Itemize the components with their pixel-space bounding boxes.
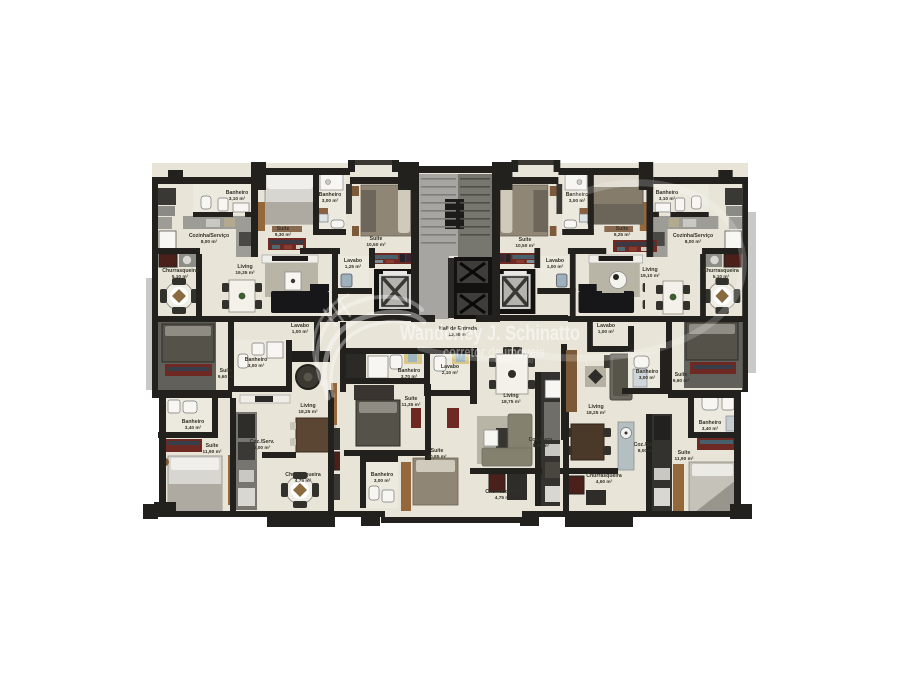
svg-text:Living: Living bbox=[642, 267, 657, 273]
svg-text:1,00 m²: 1,00 m² bbox=[598, 329, 615, 335]
svg-text:9,30 m²: 9,30 m² bbox=[275, 232, 292, 238]
svg-text:18,25 m²: 18,25 m² bbox=[586, 410, 606, 416]
svg-text:3,00 m²: 3,00 m² bbox=[374, 478, 391, 484]
svg-text:3,00 m²: 3,00 m² bbox=[569, 198, 586, 204]
svg-text:Suíte: Suíte bbox=[405, 396, 418, 402]
svg-text:Suíte: Suíte bbox=[431, 448, 444, 454]
svg-text:Suíte: Suíte bbox=[370, 236, 383, 242]
svg-text:10,50 m²: 10,50 m² bbox=[366, 242, 386, 248]
svg-text:Cozinha/Serviço: Cozinha/Serviço bbox=[189, 233, 229, 239]
svg-text:5,10 m²: 5,10 m² bbox=[713, 274, 730, 280]
svg-text:Suíte: Suíte bbox=[616, 226, 629, 232]
svg-text:Lavabo: Lavabo bbox=[291, 323, 309, 329]
svg-text:Suíte: Suíte bbox=[220, 368, 233, 374]
svg-text:8,00 m²: 8,00 m² bbox=[685, 239, 702, 245]
svg-text:8,00 m²: 8,00 m² bbox=[254, 445, 271, 451]
svg-text:3,40 m²: 3,40 m² bbox=[185, 425, 202, 431]
svg-text:3,70 m²: 3,70 m² bbox=[401, 374, 418, 380]
svg-text:Living: Living bbox=[588, 404, 603, 410]
svg-text:Banheiro: Banheiro bbox=[226, 190, 248, 196]
svg-text:Wanderley J. Schinatto: Wanderley J. Schinatto bbox=[400, 322, 580, 345]
svg-text:Suíte: Suíte bbox=[675, 372, 688, 378]
svg-text:Living: Living bbox=[237, 264, 252, 270]
svg-text:9,60 m²: 9,60 m² bbox=[673, 378, 690, 384]
svg-text:Banheiro: Banheiro bbox=[245, 357, 267, 363]
svg-text:Coz./Serv.: Coz./Serv. bbox=[250, 439, 275, 445]
svg-text:9,60 m²: 9,60 m² bbox=[218, 374, 235, 380]
svg-text:Churrasqueira: Churrasqueira bbox=[162, 268, 198, 274]
svg-text:4,75 m²: 4,75 m² bbox=[495, 495, 512, 501]
svg-text:1,00 m²: 1,00 m² bbox=[547, 264, 564, 270]
svg-text:1,00 m²: 1,00 m² bbox=[292, 329, 309, 335]
svg-text:Lavabo: Lavabo bbox=[344, 258, 362, 264]
svg-text:Lavabo: Lavabo bbox=[441, 364, 459, 370]
svg-text:Suíte: Suíte bbox=[277, 226, 290, 232]
svg-text:Suíte: Suíte bbox=[206, 443, 219, 449]
svg-text:11,90 m²: 11,90 m² bbox=[675, 456, 694, 462]
svg-text:Lavabo: Lavabo bbox=[597, 323, 615, 329]
svg-text:4,60 m²: 4,60 m² bbox=[596, 479, 613, 485]
svg-text:Banheiro: Banheiro bbox=[182, 419, 204, 425]
svg-text:Suíte: Suíte bbox=[519, 237, 532, 243]
svg-text:Banheiro: Banheiro bbox=[371, 472, 393, 478]
svg-text:3,40 m²: 3,40 m² bbox=[702, 426, 719, 432]
svg-text:Banheiro: Banheiro bbox=[699, 420, 721, 426]
svg-text:8,00 m²: 8,00 m² bbox=[201, 239, 218, 245]
svg-text:Cozinha/Serviço: Cozinha/Serviço bbox=[673, 233, 713, 239]
svg-text:Living: Living bbox=[503, 393, 518, 399]
svg-text:3,00 m²: 3,00 m² bbox=[322, 198, 339, 204]
svg-text:5,10 m²: 5,10 m² bbox=[172, 274, 189, 280]
svg-text:3,10 m²: 3,10 m² bbox=[659, 196, 676, 202]
svg-text:Banheiro: Banheiro bbox=[398, 368, 420, 374]
svg-text:11,90 m²: 11,90 m² bbox=[203, 449, 222, 455]
svg-text:3,00 m²: 3,00 m² bbox=[639, 375, 656, 381]
svg-text:8,00 m²: 8,00 m² bbox=[638, 448, 655, 454]
svg-text:Churrasqueira: Churrasqueira bbox=[485, 489, 521, 495]
svg-text:10,50 m²: 10,50 m² bbox=[515, 243, 535, 249]
svg-text:Coz./Serv.: Coz./Serv. bbox=[529, 437, 554, 443]
svg-text:Living: Living bbox=[300, 403, 315, 409]
svg-text:9,25 m²: 9,25 m² bbox=[614, 232, 631, 238]
svg-text:2,10 m²: 2,10 m² bbox=[442, 370, 459, 376]
svg-text:Suíte: Suíte bbox=[678, 450, 691, 456]
svg-text:Coz./Serv.: Coz./Serv. bbox=[634, 442, 659, 448]
svg-text:Banheiro: Banheiro bbox=[319, 192, 341, 198]
svg-text:3,10 m²: 3,10 m² bbox=[229, 196, 246, 202]
svg-text:19,10 m²: 19,10 m² bbox=[640, 273, 660, 279]
svg-text:1,25 m²: 1,25 m² bbox=[345, 264, 362, 270]
svg-text:Churrasqueira: Churrasqueira bbox=[586, 473, 622, 479]
svg-text:19,35 m²: 19,35 m² bbox=[235, 270, 255, 276]
svg-text:Churrasqueira: Churrasqueira bbox=[285, 472, 321, 478]
svg-text:18,25 m²: 18,25 m² bbox=[298, 409, 318, 415]
svg-text:11,35 m²: 11,35 m² bbox=[402, 402, 421, 408]
svg-text:3,00 m²: 3,00 m² bbox=[248, 363, 265, 369]
svg-text:10,85 m²: 10,85 m² bbox=[427, 454, 447, 460]
svg-text:Churrasqueira: Churrasqueira bbox=[703, 268, 739, 274]
svg-text:8,00 m²: 8,00 m² bbox=[533, 443, 550, 449]
svg-text:CRECI 27.430: CRECI 27.430 bbox=[495, 359, 534, 365]
svg-text:4,75 m²: 4,75 m² bbox=[295, 478, 312, 484]
svg-text:18,75 m²: 18,75 m² bbox=[501, 399, 521, 405]
svg-text:Banheiro: Banheiro bbox=[636, 369, 658, 375]
svg-text:Lavabo: Lavabo bbox=[546, 258, 564, 264]
